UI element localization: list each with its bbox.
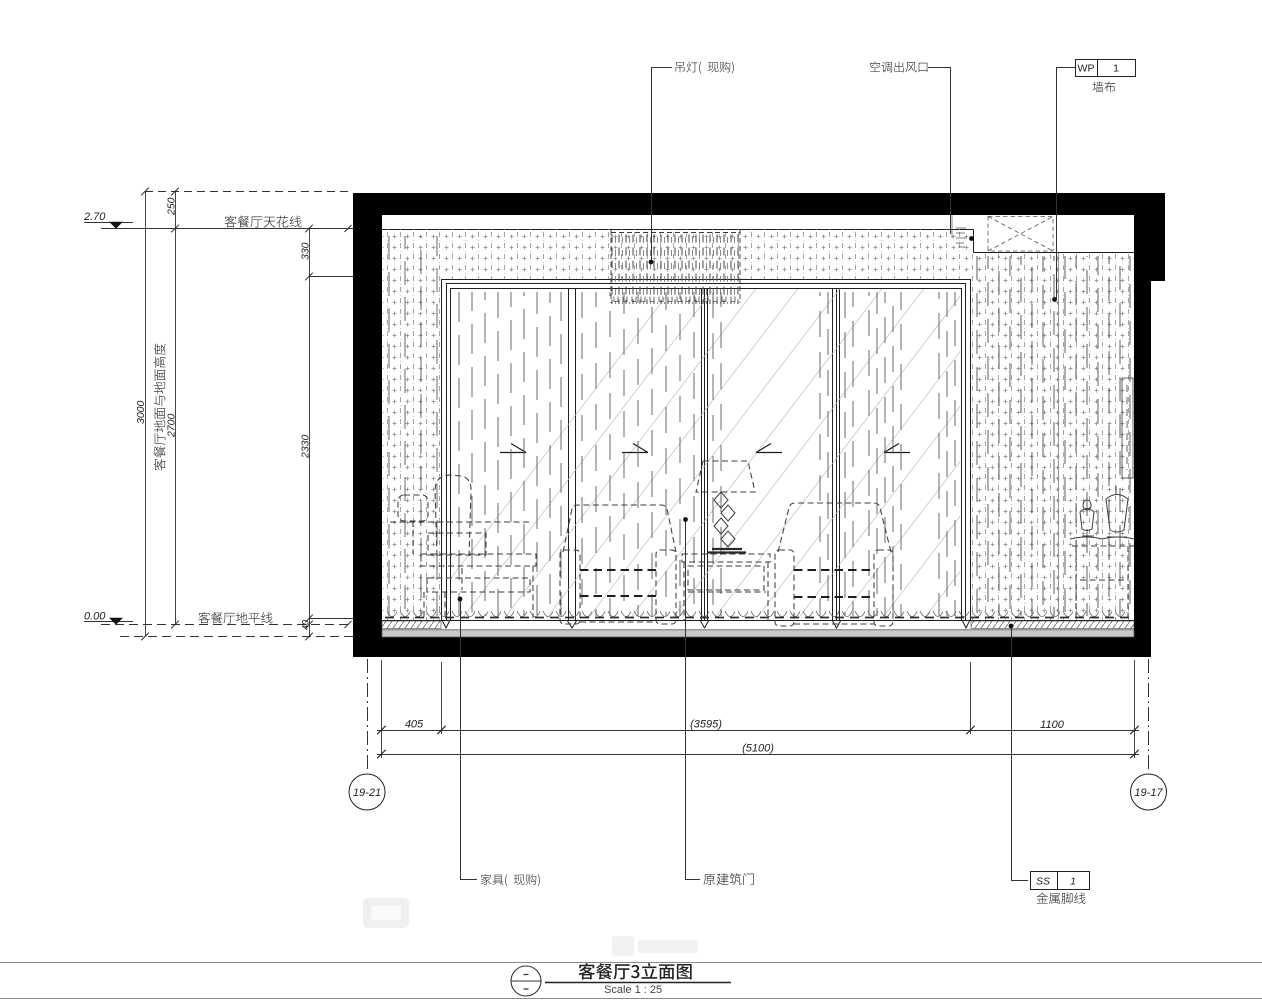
svg-text:0.00: 0.00: [84, 611, 106, 623]
svg-text:SS: SS: [1036, 876, 1050, 888]
svg-text:19-17: 19-17: [1134, 787, 1163, 799]
svg-text:40: 40: [301, 620, 311, 630]
svg-text:1: 1: [1070, 876, 1076, 888]
svg-text:19-21: 19-21: [353, 787, 381, 799]
svg-text:2330: 2330: [300, 434, 312, 459]
svg-text:405: 405: [405, 719, 424, 731]
svg-text:(3595): (3595): [690, 719, 722, 731]
svg-text:3000: 3000: [135, 400, 147, 424]
svg-text:2700: 2700: [166, 413, 178, 438]
svg-text:1100: 1100: [1040, 719, 1065, 731]
svg-text:(5100): (5100): [742, 743, 774, 755]
svg-text:Scale 1 : 25: Scale 1 : 25: [604, 984, 662, 996]
svg-text:250: 250: [166, 197, 178, 216]
svg-text:2.70: 2.70: [83, 211, 106, 223]
svg-text:330: 330: [300, 242, 312, 260]
svg-text:WP: WP: [1078, 63, 1095, 75]
svg-text:1: 1: [1113, 63, 1119, 75]
